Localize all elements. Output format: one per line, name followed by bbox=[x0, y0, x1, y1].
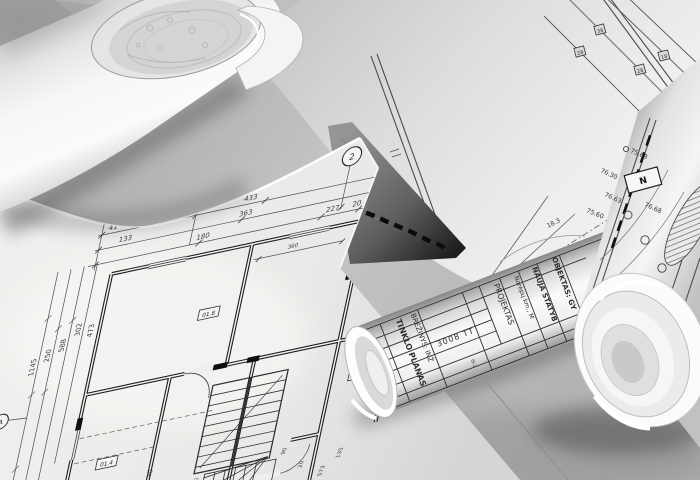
blueprints-scene: 38 28 78 18 28 38 5 18.3 75.60 bbox=[0, 0, 700, 480]
blueprints-photo: 38 28 78 18 28 38 5 18.3 75.60 bbox=[0, 0, 700, 480]
